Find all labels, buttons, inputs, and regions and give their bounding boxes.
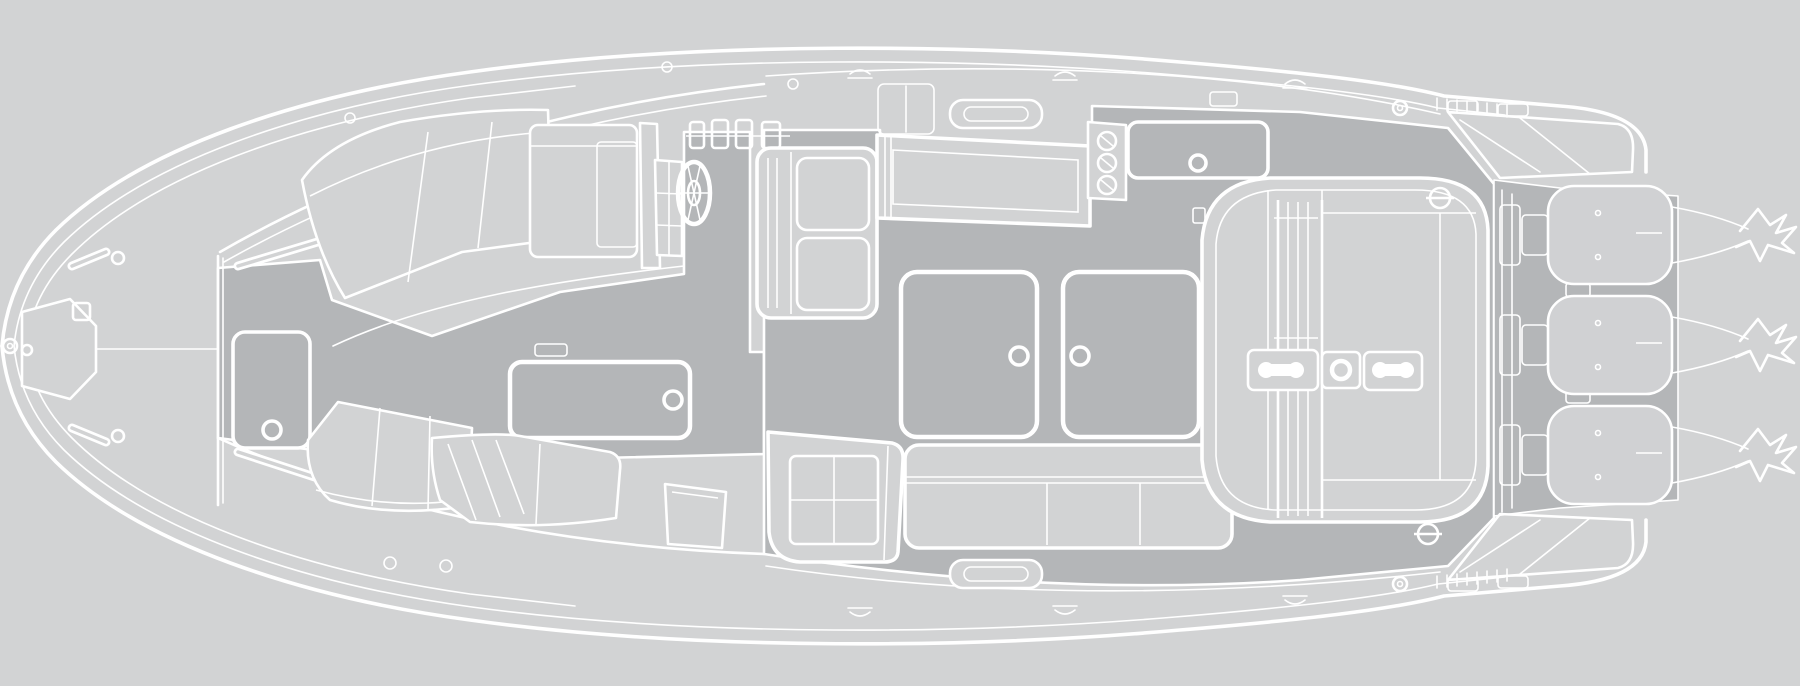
side-bench-seat — [432, 434, 621, 525]
gunwale-storage-hatch — [1128, 122, 1268, 178]
cockpit-hatch-aft — [1063, 272, 1199, 437]
foredeck-hatch — [233, 332, 310, 448]
grill-burners — [1088, 122, 1126, 200]
companion-seat — [768, 432, 903, 562]
anchor-locker — [22, 299, 96, 399]
helm-seat — [757, 148, 877, 318]
companion-step — [665, 484, 726, 548]
port-cabinet — [530, 125, 637, 257]
cockpit-hatch-forward — [901, 272, 1037, 437]
boat-deck-plan — [0, 0, 1800, 686]
stern-cleats — [1248, 350, 1422, 390]
galley-wetbar — [877, 135, 1090, 226]
aft-bench — [905, 445, 1232, 548]
